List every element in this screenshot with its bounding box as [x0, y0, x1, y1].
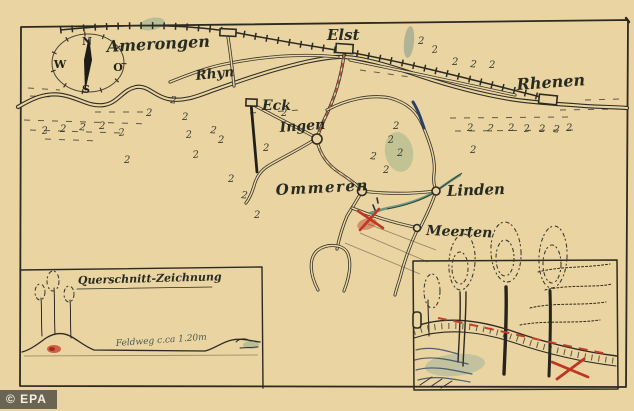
svg-text:2: 2 [78, 122, 86, 134]
svg-text:2: 2 [417, 36, 424, 47]
svg-text:2: 2 [382, 165, 389, 176]
label-linden: Linden [446, 180, 506, 200]
svg-text:2: 2 [469, 59, 477, 71]
compass-s: S [82, 83, 90, 96]
label-rhyn: Rhyn [194, 64, 235, 84]
svg-text:2: 2 [538, 124, 545, 135]
blue-ink-mark [413, 102, 424, 128]
pencil-lines [345, 224, 436, 274]
compass-o: O [113, 61, 123, 74]
svg-text:2: 2 [396, 148, 403, 159]
label-meerten: Meerten [425, 223, 493, 241]
svg-text:2: 2 [552, 124, 560, 136]
svg-text:2: 2 [184, 129, 192, 141]
label-rhenen: Rhenen [515, 70, 586, 94]
svg-text:2: 2 [488, 60, 495, 71]
svg-text:2: 2 [392, 121, 399, 132]
svg-text:2: 2 [217, 135, 224, 146]
svg-text:2: 2 [486, 123, 494, 135]
bold-road-eck [251, 103, 257, 172]
svg-text:2: 2 [262, 143, 269, 154]
label-ingen: Ingen [278, 117, 326, 136]
svg-text:2: 2 [430, 44, 438, 56]
svg-text:2: 2 [181, 112, 188, 123]
cross-section-title: Querschnitt-Zeichnung [78, 270, 222, 287]
svg-text:2: 2 [565, 123, 572, 134]
map-drawing: N W S O 2 2 2 2 2 2 2 2 2 2 2 2 2 2 2 2 … [0, 0, 634, 411]
label-eck: Eck [261, 98, 291, 114]
svg-text:2: 2 [240, 190, 248, 202]
elst-village [336, 43, 354, 53]
svg-text:2: 2 [123, 155, 130, 166]
inset-x-mark [552, 359, 588, 379]
map-photo: N W S O 2 2 2 2 2 2 2 2 2 2 2 2 2 2 2 2 … [0, 0, 634, 411]
svg-text:2: 2 [191, 149, 199, 161]
cross-section-inset: Querschnitt-Zeichnung Feldweg c.ca 1.20m [20, 267, 263, 388]
amerongen-station [220, 29, 236, 37]
svg-text:2: 2 [507, 123, 514, 134]
label-ommeren: Ommeren [275, 176, 369, 199]
svg-text:2: 2 [98, 121, 105, 132]
svg-text:2: 2 [466, 123, 473, 134]
rhenen-village [539, 94, 558, 105]
svg-text:2: 2 [227, 174, 234, 185]
svg-text:2: 2 [40, 125, 48, 137]
svg-text:2: 2 [369, 151, 377, 163]
compass-w: W [53, 58, 67, 71]
svg-text:2: 2 [253, 210, 260, 221]
svg-text:2: 2 [145, 108, 152, 119]
svg-text:2: 2 [522, 123, 530, 135]
svg-text:2: 2 [469, 145, 476, 156]
svg-text:2: 2 [386, 134, 394, 146]
label-amerongen: Amerongen [104, 32, 210, 56]
svg-text:2: 2 [59, 124, 66, 135]
eck-village [246, 99, 257, 106]
compass-n: N [82, 35, 92, 48]
svg-text:2: 2 [117, 127, 126, 139]
gravestone [413, 312, 421, 328]
svg-text:2: 2 [451, 57, 458, 68]
svg-text:2: 2 [169, 95, 177, 107]
feldweg-label: Feldweg c.ca 1.20m [115, 333, 208, 349]
svg-text:2: 2 [209, 125, 217, 137]
label-elst: Elst [326, 26, 360, 44]
village-nodes [220, 29, 558, 232]
epa-watermark: © EPA [0, 390, 57, 409]
